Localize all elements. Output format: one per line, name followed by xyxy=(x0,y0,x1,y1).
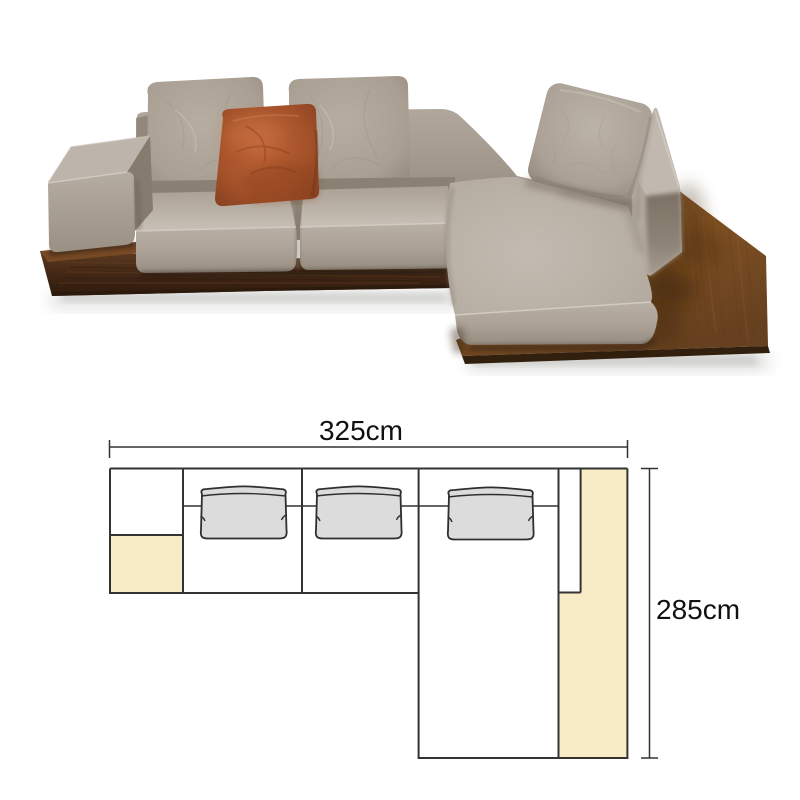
svg-text:285cm: 285cm xyxy=(656,594,740,625)
svg-text:325cm: 325cm xyxy=(319,415,403,446)
